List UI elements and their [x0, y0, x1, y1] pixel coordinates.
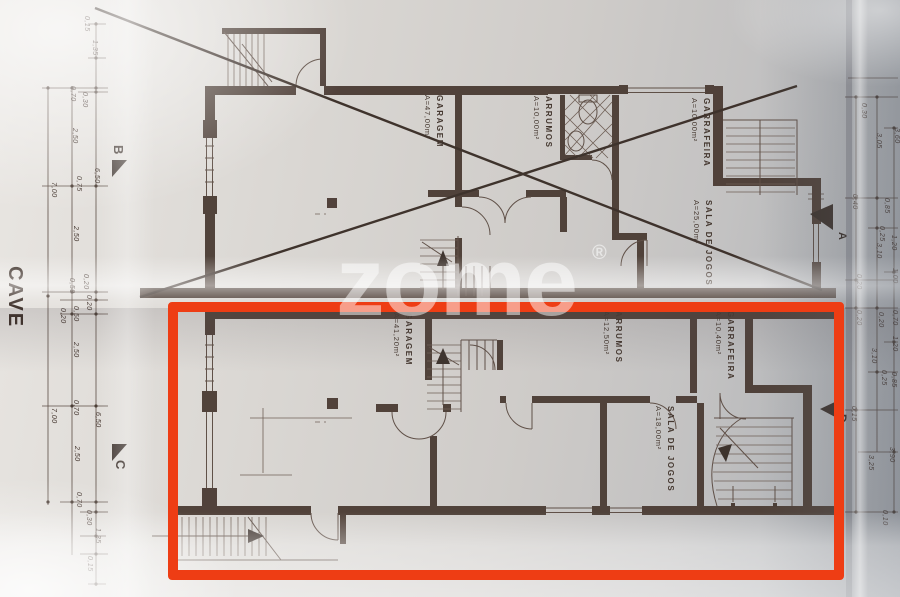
- dimension-label: 0,85: [890, 372, 897, 388]
- room-label-arrumos-upper: ARRUMOS A=10,00m²: [530, 96, 554, 149]
- room-label-garagem-upper: GARAGEM A=47,00m²: [421, 95, 445, 148]
- highlight-rectangle: [168, 302, 844, 580]
- dimension-label: 0,75: [75, 176, 82, 192]
- dimension-label: 6,50: [93, 168, 100, 184]
- dimension-label: 0,70: [72, 400, 79, 416]
- dimension-label: 0,30: [85, 510, 92, 526]
- dimension-label: 3,10: [870, 348, 877, 364]
- dimension-label: 2,50: [73, 446, 80, 462]
- dimension-label: 0,30: [81, 92, 88, 108]
- dimension-label: 2,50: [71, 128, 78, 144]
- dimension-label: 0,20: [855, 274, 862, 290]
- dimension-label: 1,35: [91, 40, 98, 56]
- dimension-label: 3,90: [888, 447, 895, 463]
- page-title: CAVE: [3, 266, 26, 328]
- floorplan-photo: CAVE GARAGEM A=47,00m² ARRUMOS A=10,00m²…: [0, 0, 900, 597]
- section-b-arrow: [112, 160, 127, 177]
- dimension-label: 1,20: [890, 235, 897, 251]
- dimension-label: 0,10: [881, 510, 888, 526]
- dimension-label: 0,30: [860, 103, 867, 119]
- dimension-label: 0,20: [82, 274, 89, 290]
- room-label-garrafeira-upper: GARRAFEIRA A=10,00m²: [688, 98, 712, 167]
- dimension-label: 3,25: [867, 455, 874, 471]
- dimension-label: 2,50: [72, 226, 79, 242]
- dimension-label: 3,60: [893, 128, 900, 144]
- dimension-label: 0,25: [878, 226, 885, 242]
- dimension-label: 0,20: [59, 308, 66, 324]
- dimension-label: 0,50: [68, 278, 75, 294]
- dimension-label: 6,50: [94, 412, 101, 428]
- dimension-label: 0,50: [72, 306, 79, 322]
- room-label-sala-upper: SALA DE JOGOS A=25,00m²: [690, 200, 714, 286]
- dimension-label: 3,05: [875, 133, 882, 149]
- dimension-label: 3,10: [875, 243, 882, 259]
- dimension-label: 0,15: [850, 406, 857, 422]
- dimension-label: 0,40: [851, 194, 858, 210]
- dimension-label: 0,70: [69, 86, 76, 102]
- exterior-stair-right: [723, 120, 797, 195]
- watermark: zome: [336, 226, 576, 338]
- dimension-label: 0,70: [891, 310, 898, 326]
- dimension-label: 0,20: [855, 310, 862, 326]
- dimension-label: 0,70: [75, 492, 82, 508]
- dimension-label: 1,35: [94, 528, 101, 544]
- dimension-label: 0,15: [86, 556, 93, 572]
- dimension-label: 0,20: [85, 295, 92, 311]
- dimension-label: 7,00: [50, 182, 57, 198]
- dimension-label: 1,00: [891, 268, 898, 284]
- dimension-label: 0,85: [883, 198, 890, 214]
- dimension-label: 2,50: [72, 342, 79, 358]
- section-a-label: A: [836, 232, 848, 240]
- dimension-label: 0,20: [877, 312, 884, 328]
- watermark-registered-icon: ®: [592, 242, 607, 265]
- dimension-label: 0,15: [83, 16, 90, 32]
- toilet-icon: [579, 100, 597, 124]
- section-c-label: C: [113, 460, 128, 469]
- dimension-label: 7,00: [50, 408, 57, 424]
- section-b-label: B: [111, 145, 126, 154]
- dimension-label: 1,20: [891, 336, 898, 352]
- dimension-label: 0,25: [880, 370, 887, 386]
- section-c-arrow: [112, 444, 127, 461]
